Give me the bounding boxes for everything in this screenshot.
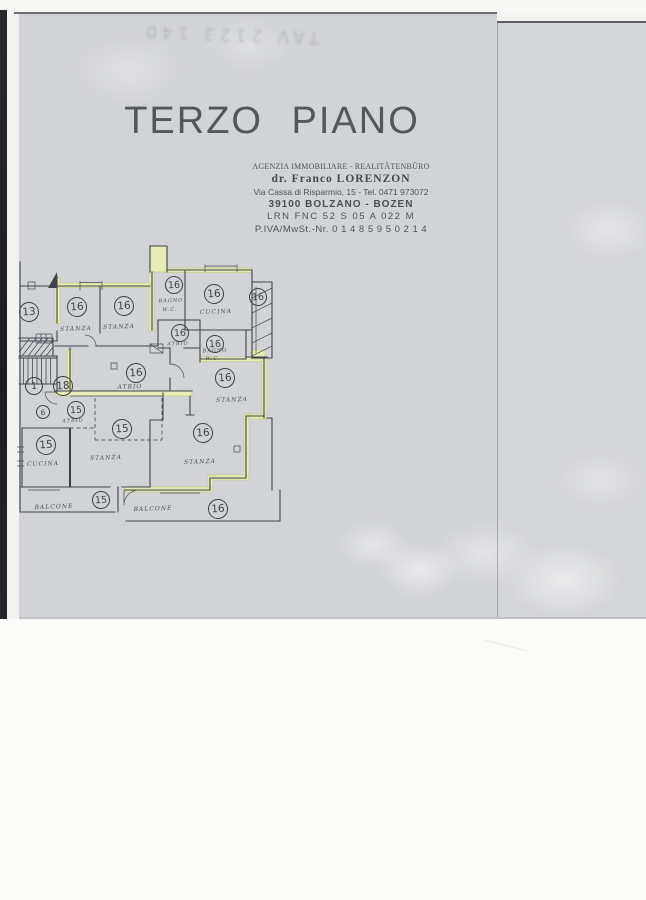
room-label: STANZA xyxy=(216,396,248,404)
room-label: STANZA xyxy=(103,323,135,331)
room-label: W.C. xyxy=(205,356,220,363)
highlighted-walls xyxy=(55,246,267,492)
room-label: ATRIO xyxy=(117,383,142,391)
room-label: STANZA xyxy=(60,325,92,333)
scanned-floorplan-page: TAV 2123 140 TERZO PIANO AGENZIA IMMOBIL… xyxy=(0,0,646,900)
door-flag xyxy=(48,272,57,288)
room-label: ATRIO xyxy=(62,418,84,425)
room-label: ATRIO xyxy=(167,341,189,348)
room-label: BAGNO xyxy=(203,348,228,355)
room-label: BAGNO xyxy=(159,298,184,305)
room-label: BALCONE xyxy=(133,505,172,513)
room-label: STANZA xyxy=(90,454,122,462)
room-label: W.C. xyxy=(162,307,177,314)
room-label: CUCINA xyxy=(27,460,59,468)
room-label: BALCONE xyxy=(34,503,73,511)
room-label: STANZA xyxy=(184,458,216,466)
room-label: CUCINA xyxy=(200,308,232,316)
floorplan-drawing xyxy=(0,0,646,900)
